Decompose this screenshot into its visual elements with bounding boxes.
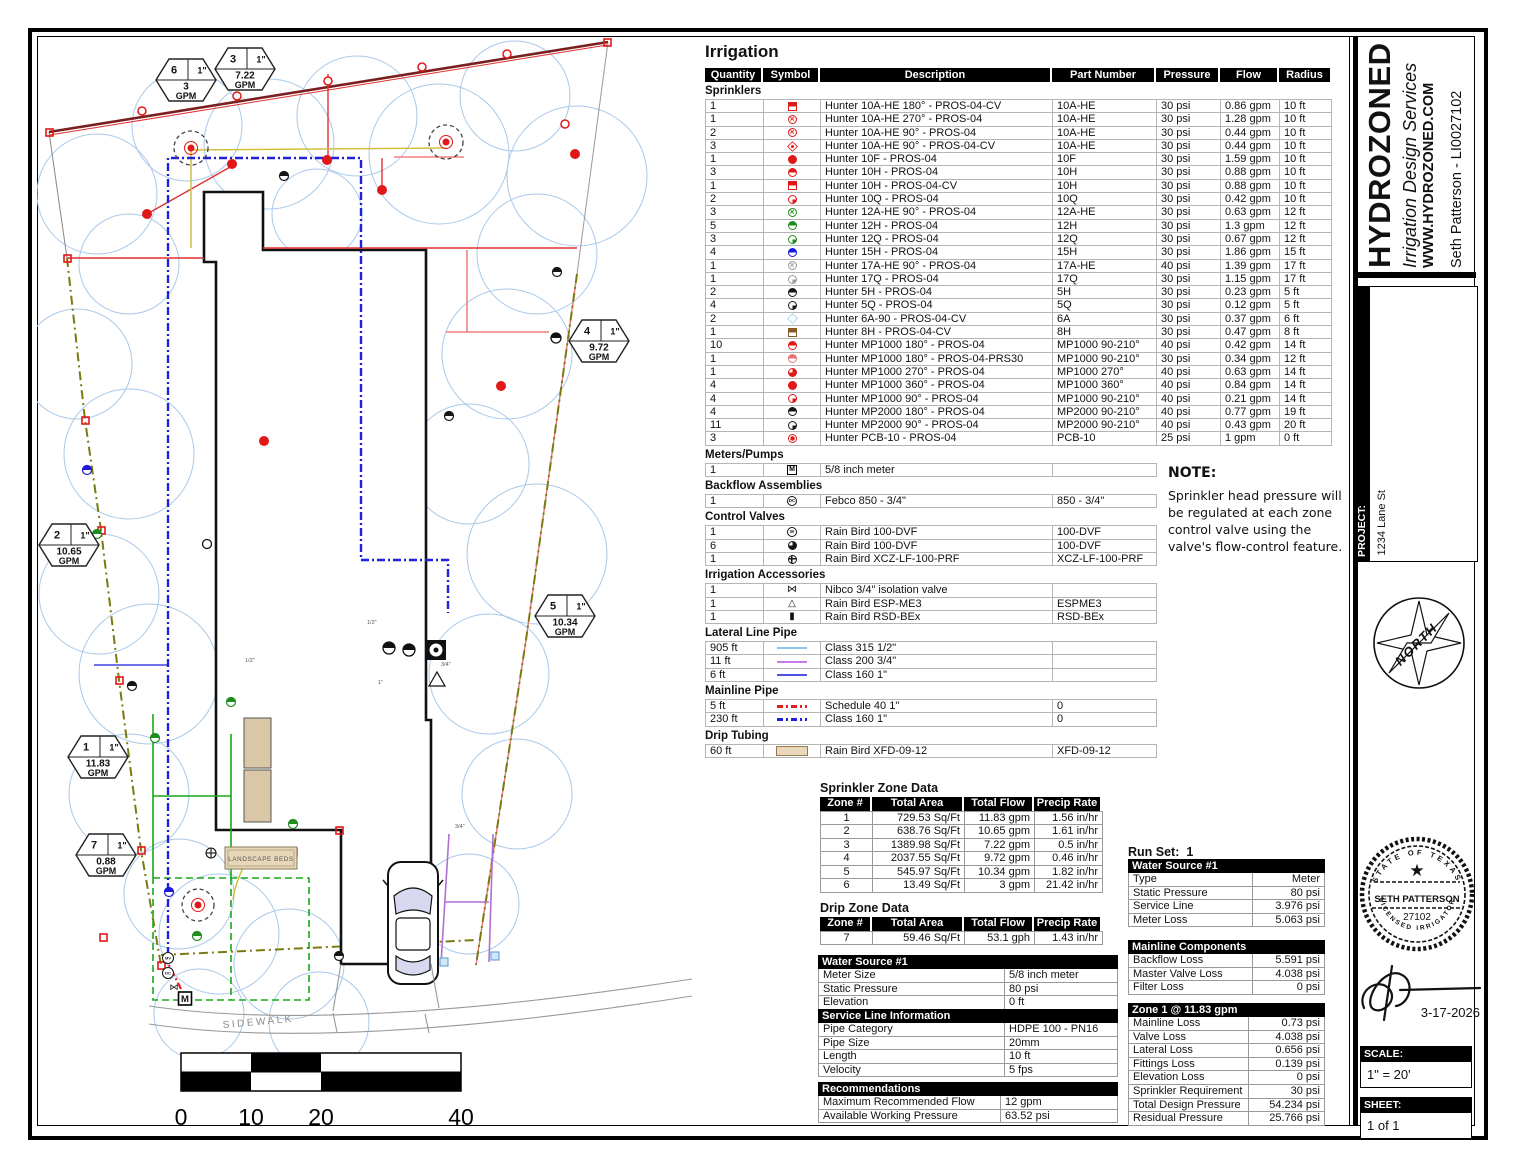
legend-desc-cell: Class 160 1"	[820, 669, 1052, 682]
table-cell: 21.42 in/hr	[1034, 879, 1102, 893]
legend-symbol-cell	[763, 669, 820, 682]
water-source-hydraulics-table: Water Source #1TypeMeterStatic Pressure8…	[1128, 859, 1325, 927]
landscape-beds: LANDSCAPE BEDS	[225, 847, 297, 869]
controller-icon: △	[788, 599, 796, 609]
legend-symbol-cell	[763, 313, 820, 326]
scale-tick-label: 20	[308, 1104, 334, 1130]
table-header: Service Line Information	[818, 1009, 1118, 1023]
table-label-cell: Elevation Loss	[1128, 1071, 1248, 1085]
project-name: 1234 Lane St	[1376, 490, 1388, 555]
table-value-cell: 0 psi	[1248, 1071, 1324, 1085]
patio-deck	[244, 718, 271, 822]
north-arrow: NORTH	[1369, 593, 1469, 693]
scale-box: SCALE: 1" = 20'	[1360, 1046, 1472, 1088]
legend-qty-cell: 1	[705, 153, 763, 166]
legend-desc-cell: Hunter 5H - PROS-04	[820, 286, 1052, 299]
brand-tagline: Irrigation Design Services	[1400, 40, 1421, 268]
isolation-valve-icon: ⋈	[170, 982, 179, 992]
legend-part-cell: 0	[1052, 700, 1156, 713]
scale-label: SCALE:	[1360, 1046, 1472, 1062]
legend-flow-cell: 0.44 gpm	[1220, 127, 1279, 140]
zone-flow-unit: GPM	[555, 627, 576, 637]
legend-desc-cell: Hunter MP1000 360° - PROS-04	[820, 379, 1052, 392]
legend-desc-cell: Hunter 10A-HE 90° - PROS-04-CV	[820, 140, 1052, 153]
legend-symbol-cell	[763, 339, 820, 352]
table-row: Fittings Loss0.139 psi	[1128, 1058, 1324, 1072]
legend-desc-cell: Hunter MP2000 180° - PROS-04	[820, 406, 1052, 419]
zone-flow-unit: GPM	[88, 768, 109, 778]
sprinkler-90-icon: ×	[788, 208, 797, 217]
legend-desc-cell: Hunter MP1000 180° - PROS-04-PRS30	[820, 353, 1052, 366]
table-title: Drip Zone Data	[820, 901, 1103, 915]
table-cell: 13.49 Sq/Ft	[872, 879, 964, 893]
legend-qty-cell: 1	[705, 273, 763, 286]
legend-row: 11 ftClass 200 3/4"	[705, 655, 1156, 668]
legend-symbol-cell: ▮	[763, 611, 820, 624]
table-cell: 7	[820, 932, 872, 946]
rotator-270-icon	[788, 368, 797, 377]
zone-number: 1	[83, 742, 89, 754]
legend-radius-cell: 10 ft	[1279, 100, 1331, 113]
legend-row: 1Rain Bird XCZ-LF-100-PRFXCZ-LF-100-PRF	[705, 553, 1156, 566]
legend-radius-cell: 10 ft	[1279, 153, 1331, 166]
table-body: Maximum Recommended Flow12 gpmAvailable …	[818, 1096, 1118, 1123]
legend-part-cell: 12H	[1052, 220, 1156, 233]
legend-row: 3×Hunter 12A-HE 90° - PROS-0412A-HE30 ps…	[705, 206, 1331, 219]
table-label-cell: Meter Size	[818, 969, 1004, 983]
table-cell: 0.46 in/hr	[1034, 852, 1102, 866]
sch40-mainline	[777, 705, 807, 708]
table-value-cell: 20mm	[1004, 1037, 1117, 1051]
legend-flow-cell: 0.42 gpm	[1220, 339, 1279, 352]
table-value-cell: 63.52 psi	[1000, 1110, 1117, 1124]
legend-flow-cell: 0.67 gpm	[1220, 233, 1279, 246]
column-header: Zone #	[820, 917, 872, 931]
legend-column-header: Part Number	[1052, 68, 1156, 82]
legend-row: 3Hunter 12Q - PROS-0412Q30 psi0.67 gpm12…	[705, 233, 1331, 246]
zone-valve-icon	[788, 541, 797, 550]
legend-symbol-cell	[763, 233, 820, 246]
table-value-cell: Meter	[1252, 873, 1324, 887]
legend-row: 11Hunter MP2000 90° - PROS-04MP2000 90-2…	[705, 419, 1331, 432]
legend-row: 3Hunter 10H - PROS-0410H30 psi0.88 gpm10…	[705, 166, 1331, 179]
legend-row: 6Rain Bird 100-DVF100-DVF	[705, 540, 1156, 553]
legend-qty-cell: 1	[705, 495, 763, 508]
sprinkler-half-icon	[788, 221, 797, 230]
legend-part-cell: MP1000 360°	[1052, 379, 1156, 392]
legend-pressure-cell: 30 psi	[1156, 127, 1220, 140]
sprinkler-zone-table: Sprinkler Zone DataZone #Total AreaTotal…	[820, 781, 1103, 893]
legend-symbol-cell	[763, 246, 820, 259]
legend-flow-cell: 0.42 gpm	[1220, 193, 1279, 206]
legend-radius-cell: 15 ft	[1279, 246, 1331, 259]
column-header: Total Area	[872, 917, 964, 931]
legend-part-cell	[1052, 669, 1156, 682]
legend-section-table: 60 ftRain Bird XFD-09-12XFD-09-12	[705, 744, 1157, 758]
legend-qty-cell: 6	[705, 540, 763, 553]
legend-symbol-cell	[763, 379, 820, 392]
legend-symbol-cell	[763, 419, 820, 432]
legend-symbol-cell: ×	[763, 260, 820, 273]
legend-column-header: Flow	[1220, 68, 1279, 82]
table-cell: 7.22 gpm	[964, 839, 1034, 853]
legend-section-table: 1M5/8 inch meter	[705, 463, 1157, 477]
table-cell: 1.82 in/hr	[1034, 866, 1102, 880]
legend-qty-cell: 5 ft	[705, 700, 763, 713]
table-label-cell: Mainline Loss	[1128, 1017, 1248, 1031]
note-body: Sprinkler head pressure will be regulate…	[1168, 487, 1344, 555]
zone-flag: 11"11.83GPM	[68, 736, 128, 778]
legend-symbol-cell	[763, 713, 820, 726]
legend-qty-cell: 2	[705, 193, 763, 206]
table-cell: 638.76 Sq/Ft	[872, 825, 964, 839]
sidebar-horizontal-divider	[1353, 272, 1476, 278]
table-value-cell: HDPE 100 - PN16	[1004, 1023, 1117, 1037]
note-block: NOTE: Sprinkler head pressure will be re…	[1168, 465, 1344, 555]
column-header: Total Flow	[964, 797, 1034, 811]
table-row: 42037.55 Sq/Ft9.72 gpm0.46 in/hr	[820, 852, 1102, 866]
legend-part-cell: 6A	[1052, 313, 1156, 326]
legend-header-row: QuantitySymbolDescriptionPart NumberPres…	[705, 68, 1332, 82]
legend-symbol-cell: ×	[763, 206, 820, 219]
brand-website: WWW.HYDROZONED.COM	[1421, 40, 1437, 268]
legend-row: 2Hunter 10Q - PROS-0410Q30 psi0.42 gpm10…	[705, 193, 1331, 206]
legend-row: 6 ftClass 160 1"	[705, 669, 1156, 682]
zone-flag: 21"10.65GPM	[39, 524, 99, 566]
legend-qty-cell: 1	[705, 464, 763, 477]
table-label-cell: Velocity	[818, 1064, 1004, 1078]
legend-row: 1×Hunter 10A-HE 270° - PROS-0410A-HE30 p…	[705, 113, 1331, 126]
legend-pressure-cell: 30 psi	[1156, 153, 1220, 166]
legend-column-header: Pressure	[1156, 68, 1220, 82]
legend-symbol-cell: ×	[763, 113, 820, 126]
table-body: Meter Size5/8 inch meterStatic Pressure8…	[818, 969, 1118, 1010]
table-header: Mainline Components	[1128, 940, 1325, 954]
legend-section-label: Sprinklers	[705, 85, 1332, 98]
legend-flow-cell: 0.77 gpm	[1220, 406, 1279, 419]
table-row: Lateral Loss0.656 psi	[1128, 1044, 1324, 1058]
legend-symbol-cell	[763, 180, 820, 193]
sidewalk-label: SIDEWALK	[222, 1014, 294, 1031]
legend-radius-cell: 14 ft	[1279, 393, 1331, 406]
legend-qty-cell: 3	[705, 140, 763, 153]
legend-part-cell: 12Q	[1052, 233, 1156, 246]
legend-section-table: 1⋈Nibco 3/4" isolation valve1△Rain Bird …	[705, 583, 1157, 624]
legend-desc-cell: Hunter 10H - PROS-04	[820, 166, 1052, 179]
column-header: Total Area	[872, 797, 964, 811]
legend-symbol-cell	[763, 700, 820, 713]
zone-flag: 31"7.22GPM	[215, 48, 275, 90]
legend-part-cell: 10A-HE	[1052, 113, 1156, 126]
table-value-cell: 0.656 psi	[1248, 1044, 1324, 1058]
master-valve-icon: MV	[163, 953, 174, 964]
table-label-cell: Service Line	[1128, 900, 1252, 914]
legend-desc-cell: Hunter 15H - PROS-04	[820, 246, 1052, 259]
legend-qty-cell: 6 ft	[705, 669, 763, 682]
column-header: Precip Rate	[1034, 797, 1102, 811]
legend-part-cell: 8H	[1052, 326, 1156, 339]
legend-flow-cell: 1.39 gpm	[1220, 260, 1279, 273]
legend-desc-cell: Hunter 12A-HE 90° - PROS-04	[820, 206, 1052, 219]
table-header-row: Zone #Total AreaTotal FlowPrecip Rate	[820, 797, 1103, 811]
table-cell: 4	[820, 852, 872, 866]
rain-sensor-icon: ▮	[789, 612, 795, 622]
rotator-90-icon	[788, 421, 797, 430]
table-cell: 59.46 Sq/Ft	[872, 932, 964, 946]
legend-qty-cell: 1	[705, 260, 763, 273]
legend-desc-cell: Hunter 10Q - PROS-04	[820, 193, 1052, 206]
table-row: Pipe CategoryHDPE 100 - PN16	[818, 1023, 1117, 1037]
sprinkler-90cv-icon	[787, 141, 798, 152]
legend-row: 1Hunter MP1000 270° - PROS-04MP1000 270°…	[705, 366, 1331, 379]
legend-row: 2Hunter 5H - PROS-045H30 psi0.23 gpm5 ft	[705, 286, 1331, 299]
legend-part-cell: 850 - 3/4"	[1052, 495, 1156, 508]
table-value-cell: 0.73 psi	[1248, 1017, 1324, 1031]
legend-desc-cell: Class 160 1"	[820, 713, 1052, 726]
table-label-cell: Static Pressure	[818, 983, 1004, 997]
table-row: Elevation0 ft	[818, 996, 1117, 1010]
legend-qty-cell: 11 ft	[705, 655, 763, 668]
legend-pressure-cell: 40 psi	[1156, 339, 1220, 352]
rotator-90-icon	[788, 394, 797, 403]
scale-tick-label: 40	[448, 1104, 474, 1130]
legend-part-cell: 10H	[1052, 166, 1156, 179]
table-row: Service Line3.976 psi	[1128, 900, 1324, 914]
legend-pressure-cell: 40 psi	[1156, 366, 1220, 379]
legend-row: 1Hunter 10H - PROS-04-CV10H30 psi0.88 gp…	[705, 180, 1331, 193]
legend-row: 1M5/8 inch meter	[705, 464, 1156, 477]
legend-radius-cell: 12 ft	[1279, 353, 1331, 366]
legend-column-header: Description	[820, 68, 1052, 82]
table-cell: 11.83 gpm	[964, 812, 1034, 826]
sprinkler-quarter-icon	[788, 195, 797, 204]
legend-qty-cell: 905 ft	[705, 642, 763, 655]
legend-row: 2Hunter 6A-90 - PROS-04-CV6A30 psi0.37 g…	[705, 313, 1331, 326]
zone-number: 3	[230, 54, 236, 66]
legend-radius-cell: 19 ft	[1279, 406, 1331, 419]
legend-desc-cell: Rain Bird RSD-BEx	[820, 611, 1052, 624]
valve-size: 1"	[117, 841, 126, 851]
legend-part-cell: 10A-HE	[1052, 100, 1156, 113]
legend-symbol-cell: W	[763, 526, 820, 539]
legend-desc-cell: Febco 850 - 3/4"	[820, 495, 1052, 508]
legend-pressure-cell: 30 psi	[1156, 246, 1220, 259]
legend-pressure-cell: 30 psi	[1156, 100, 1220, 113]
legend-qty-cell: 1	[705, 326, 763, 339]
sprinkler-90-icon: ×	[788, 261, 797, 270]
legend-row: 1WRain Bird 100-DVF100-DVF	[705, 526, 1156, 539]
sheet-label: SHEET:	[1360, 1097, 1472, 1113]
legend-radius-cell: 10 ft	[1279, 127, 1331, 140]
table-value-cell: 0.139 psi	[1248, 1058, 1324, 1072]
legend-pressure-cell: 40 psi	[1156, 260, 1220, 273]
table-value-cell: 0 psi	[1252, 981, 1324, 995]
legend-desc-cell: Hunter 12Q - PROS-04	[820, 233, 1052, 246]
legend-desc-cell: Rain Bird XFD-09-12	[820, 745, 1052, 758]
pipe-160-line	[777, 674, 807, 676]
table-row: Total Design Pressure54.234 psi	[1128, 1099, 1324, 1113]
run-set-label: Run Set: 1	[1128, 845, 1193, 859]
legend-symbol-cell	[763, 393, 820, 406]
project-label: PROJECT:	[1356, 505, 1368, 557]
zone-number: 4	[584, 326, 591, 338]
table-cell: 2	[820, 825, 872, 839]
sprinkler-quarter-icon	[788, 235, 797, 244]
legend-part-cell	[1052, 464, 1156, 477]
sprinkler-90-icon: ×	[788, 128, 797, 137]
legend-radius-cell: 12 ft	[1279, 206, 1331, 219]
legend-flow-cell: 0.21 gpm	[1220, 393, 1279, 406]
legend-row: 3Hunter PCB-10 - PROS-04PCB-1025 psi1 gp…	[705, 432, 1331, 445]
legend-part-cell: PCB-10	[1052, 432, 1156, 445]
legend-pressure-cell: 30 psi	[1156, 286, 1220, 299]
legend-qty-cell: 60 ft	[705, 745, 763, 758]
legend-symbol-cell	[763, 299, 820, 312]
svg-text:DC: DC	[165, 971, 171, 976]
car	[383, 862, 443, 984]
legend-pressure-cell: 30 psi	[1156, 166, 1220, 179]
legend-radius-cell: 10 ft	[1279, 140, 1331, 153]
legend-qty-cell: 5	[705, 220, 763, 233]
table-row: Mainline Loss0.73 psi	[1128, 1017, 1324, 1031]
svg-text:27102: 27102	[1403, 912, 1431, 923]
legend-part-cell: 100-DVF	[1052, 526, 1156, 539]
legend-flow-cell: 1.59 gpm	[1220, 153, 1279, 166]
legend-part-cell: ESPME3	[1052, 598, 1156, 611]
table-label-cell: Type	[1128, 873, 1252, 887]
drip-tubing-swatch	[776, 746, 808, 756]
legend-row: 4Hunter MP1000 90° - PROS-04MP1000 90-21…	[705, 393, 1331, 406]
legend-flow-cell: 1.3 gpm	[1220, 220, 1279, 233]
table-value-cell: 5/8 inch meter	[1004, 969, 1117, 983]
table-label-cell: Lateral Loss	[1128, 1044, 1248, 1058]
zone-number: 6	[171, 65, 177, 77]
legend-flow-cell: 1 gpm	[1220, 432, 1279, 445]
svg-text:LANDSCAPE BEDS: LANDSCAPE BEDS	[228, 856, 293, 863]
legend-pressure-cell: 30 psi	[1156, 326, 1220, 339]
legend-qty-cell: 1	[705, 180, 763, 193]
legend-desc-cell: Hunter 10A-HE 180° - PROS-04-CV	[820, 100, 1052, 113]
legend-pressure-cell: 30 psi	[1156, 140, 1220, 153]
zone-flow-unit: GPM	[96, 866, 117, 876]
table-body: TypeMeterStatic Pressure80 psiService Li…	[1128, 873, 1325, 927]
table-cell: 10.34 gpm	[964, 866, 1034, 880]
table-value-cell: 5.063 psi	[1252, 914, 1324, 928]
zone-flag: 51"10.34GPM	[535, 595, 595, 637]
legend-desc-cell: Schedule 40 1"	[820, 700, 1052, 713]
meter-icon: M	[179, 992, 192, 1005]
legend-qty-cell: 1	[705, 366, 763, 379]
table-label-cell: Backflow Loss	[1128, 954, 1252, 968]
legend-pressure-cell: 40 psi	[1156, 419, 1220, 432]
valve-size: 1"	[197, 66, 206, 76]
table-row: Elevation Loss0 psi	[1128, 1071, 1324, 1085]
legend-qty-cell: 4	[705, 393, 763, 406]
legend-symbol-cell: ×	[763, 127, 820, 140]
pipe-size-label: 3/4"	[441, 662, 451, 668]
pipe-200-line	[777, 661, 807, 663]
svg-text:MV: MV	[165, 956, 171, 961]
legend-row: 4Hunter MP2000 180° - PROS-04MP2000 90-2…	[705, 406, 1331, 419]
zone-flow-unit: GPM	[176, 91, 197, 101]
legend-row: 1Hunter 10F - PROS-0410F30 psi1.59 gpm10…	[705, 153, 1331, 166]
table-label-cell: Residual Pressure	[1128, 1112, 1248, 1126]
backflow-icon: DC	[787, 496, 797, 506]
legend-qty-cell: 1	[705, 598, 763, 611]
table-row: Available Working Pressure63.52 psi	[818, 1110, 1117, 1124]
legend-radius-cell: 0 ft	[1279, 432, 1331, 445]
valve-size: 1"	[80, 531, 89, 541]
legend-qty-cell: 4	[705, 246, 763, 259]
pipe-size-label: 3/4"	[455, 824, 465, 830]
legend-symbol-cell	[763, 273, 820, 286]
pipe-size-label: 1/2"	[367, 620, 377, 626]
column-header: Zone #	[820, 797, 872, 811]
scale-bar-ticks: 0102040	[175, 1104, 474, 1130]
legend-radius-cell: 14 ft	[1279, 379, 1331, 392]
legend-symbol-cell: DC	[763, 495, 820, 508]
table-value-cell: 4.038 psi	[1248, 1031, 1324, 1045]
table-cell: 1.56 in/hr	[1034, 812, 1102, 826]
zone-flow-unit: GPM	[59, 556, 80, 566]
legend-pressure-cell: 40 psi	[1156, 379, 1220, 392]
legend-part-cell: MP2000 90-210°	[1052, 406, 1156, 419]
sprinkler-270-icon: ×	[788, 115, 797, 124]
legend-section-table: 1DCFebco 850 - 3/4"850 - 3/4"	[705, 494, 1157, 508]
legend-symbol-cell	[763, 642, 820, 655]
column-header: Precip Rate	[1034, 917, 1102, 931]
legend-qty-cell: 230 ft	[705, 713, 763, 726]
legend-qty-cell: 4	[705, 379, 763, 392]
legend-symbol-cell	[763, 353, 820, 366]
legend-radius-cell: 10 ft	[1279, 180, 1331, 193]
table-header-row: Zone #Total AreaTotal FlowPrecip Rate	[820, 917, 1103, 931]
valve-size: 1"	[610, 327, 619, 337]
legend-section-label: Drip Tubing	[705, 730, 1332, 743]
legend-part-cell: XCZ-LF-100-PRF	[1052, 553, 1156, 566]
zone-number: 2	[54, 530, 60, 542]
legend-flow-cell: 0.63 gpm	[1220, 366, 1279, 379]
legend-flow-cell: 0.88 gpm	[1220, 166, 1279, 179]
table-cell: 3	[820, 839, 872, 853]
legend-desc-cell: Rain Bird ESP-ME3	[820, 598, 1052, 611]
legend-section-table: 1WRain Bird 100-DVF100-DVF6Rain Bird 100…	[705, 525, 1157, 566]
table-value-cell: 25.766 psi	[1248, 1112, 1324, 1126]
legend-part-cell: 12A-HE	[1052, 206, 1156, 219]
scale-tick-label: 0	[175, 1104, 188, 1130]
table-cell: 1389.98 Sq/Ft	[872, 839, 964, 853]
table-header: Water Source #1	[818, 955, 1118, 969]
legend-symbol-cell: ⋈	[763, 584, 820, 597]
legend-row: 2×Hunter 10A-HE 90° - PROS-0410A-HE30 ps…	[705, 127, 1331, 140]
legend-symbol-cell	[763, 140, 820, 153]
table-row: Maximum Recommended Flow12 gpm	[818, 1096, 1117, 1110]
legend-qty-cell: 3	[705, 233, 763, 246]
legend-part-cell: 0	[1052, 713, 1156, 726]
table-value-cell: 4.038 psi	[1252, 968, 1324, 982]
table-row: Master Valve Loss4.038 psi	[1128, 968, 1324, 982]
zone-number: 5	[550, 601, 556, 613]
legend-row: 1Hunter 17Q - PROS-0417Q30 psi1.15 gpm17…	[705, 273, 1331, 286]
legend-desc-cell: Class 200 3/4"	[820, 655, 1052, 668]
legend-flow-cell: 1.86 gpm	[1220, 246, 1279, 259]
table-cell: 545.97 Sq/Ft	[872, 866, 964, 880]
sheet-box: SHEET: 1 of 1	[1360, 1097, 1472, 1139]
valve-size: 1"	[256, 55, 265, 65]
table-value-cell: 5.591 psi	[1252, 954, 1324, 968]
table-row: 31389.98 Sq/Ft7.22 gpm0.5 in/hr	[820, 839, 1102, 853]
legend-row: 5 ftSchedule 40 1"0	[705, 700, 1156, 713]
